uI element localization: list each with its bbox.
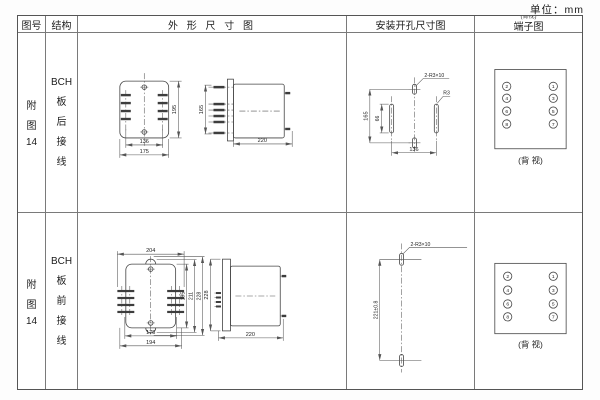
dim-depth: 220 bbox=[246, 332, 255, 338]
row1-mounting-cell: 165 66 136 2-R3×10 R3 bbox=[347, 33, 475, 213]
header-terminal-label: 端子图 bbox=[514, 18, 544, 33]
terminal-number: 7 bbox=[552, 315, 555, 321]
dim-mounting-width: 136 bbox=[409, 147, 418, 153]
dim-front-inner-width: 136 bbox=[140, 139, 149, 145]
row2-mounting-cell: 221±0.8 2-R3×10 bbox=[347, 213, 475, 389]
dim-slot-height: 66 bbox=[375, 116, 381, 122]
terminal-number: 7 bbox=[552, 122, 555, 128]
outline-drawing-rear: 136 175 195 165 bbox=[78, 33, 347, 213]
row2-structure-line: 接 bbox=[57, 312, 67, 327]
dim-height-mid: 211 bbox=[189, 292, 195, 300]
dim-mounting-height: 165 bbox=[363, 111, 369, 120]
terminal-number: 1 bbox=[552, 84, 555, 90]
front-view: 136 175 195 bbox=[120, 73, 182, 158]
view-note: (背 视) bbox=[518, 340, 543, 350]
dim-inner-width: 175 bbox=[146, 330, 155, 336]
hole-callout-label: 2-R3×10 bbox=[424, 73, 444, 79]
terminal-number: 2 bbox=[506, 274, 509, 280]
hole-callout-label: 2-R3×10 bbox=[411, 242, 431, 248]
row2-fig-char: 14 bbox=[26, 316, 37, 327]
side-view: 228 220 bbox=[204, 259, 288, 341]
terminal-number: 4 bbox=[505, 96, 508, 102]
terminal-diagram-rear: 2 4 6 8 1 3 5 7 (背 视) bbox=[475, 33, 581, 213]
row1-structure-line: 线 bbox=[57, 153, 67, 168]
row2-structure-line: BCH bbox=[51, 256, 72, 267]
header-structure: 结构 bbox=[46, 16, 78, 33]
row2-outline-cell: 204 195 211 228 175 194 bbox=[78, 213, 347, 389]
terminal-number: 3 bbox=[552, 288, 555, 294]
header-outline: 外 形 尺 寸 图 bbox=[78, 16, 347, 33]
row1-terminal-cell: 2 4 6 8 1 3 5 7 (背 视) bbox=[475, 33, 582, 213]
row1-structure-line: 接 bbox=[57, 133, 67, 148]
row1-structure-line: 板 bbox=[57, 93, 67, 108]
row1-structure-line: BCH bbox=[51, 77, 72, 88]
dim-depth: 220 bbox=[258, 138, 267, 144]
row1-fig-char: 图 bbox=[27, 117, 37, 132]
header-terminal: (背视) 端子图 bbox=[475, 16, 582, 33]
terminal-diagram-front: 2 4 6 8 1 3 5 7 (背 视) bbox=[475, 213, 581, 389]
row1-fig-char: 附 bbox=[27, 97, 37, 112]
row2-fig-no: 附 图 14 bbox=[18, 213, 46, 389]
view-note: (背 视) bbox=[518, 156, 543, 166]
row1-outline-cell: 136 175 195 165 bbox=[78, 33, 347, 213]
dim-height-outer: 228 bbox=[197, 292, 203, 301]
terminal-number: 8 bbox=[505, 122, 508, 128]
terminal-number: 5 bbox=[552, 302, 555, 308]
terminal-number: 8 bbox=[506, 315, 509, 321]
mounting-drawing-rear: 165 66 136 2-R3×10 R3 bbox=[347, 33, 474, 213]
side-view: 165 220 bbox=[199, 79, 292, 147]
dim-side-height: 228 bbox=[204, 290, 210, 299]
dim-top-width: 204 bbox=[146, 248, 155, 254]
dim-front-height: 195 bbox=[172, 105, 178, 114]
row2-structure: BCH 板 前 接 线 bbox=[46, 213, 78, 389]
terminal-number: 5 bbox=[552, 109, 555, 115]
row2-terminal-cell: 2 4 6 8 1 3 5 7 (背 视) bbox=[475, 213, 582, 389]
dim-hole-spacing: 221±0.8 bbox=[373, 301, 379, 320]
dim-bottom-width: 194 bbox=[146, 340, 155, 346]
terminal-number: 2 bbox=[505, 84, 508, 90]
terminal-number: 1 bbox=[552, 274, 555, 280]
row1-structure-line: 后 bbox=[57, 113, 67, 128]
dim-height-inner: 195 bbox=[181, 292, 187, 301]
header-fig-no: 图号 bbox=[18, 16, 46, 33]
row2-structure-line: 线 bbox=[57, 332, 67, 347]
header-mounting: 安装开孔尺寸图 bbox=[347, 16, 475, 33]
front-view: 204 195 211 228 175 194 bbox=[117, 248, 204, 349]
spec-table: 图号 结构 外 形 尺 寸 图 安装开孔尺寸图 (背视) 端子图 附 图 14 … bbox=[17, 15, 583, 390]
row1-fig-no: 附 图 14 bbox=[18, 33, 46, 213]
row1-fig-char: 14 bbox=[26, 137, 37, 148]
terminal-number: 6 bbox=[506, 302, 509, 308]
row2-structure-line: 板 bbox=[57, 272, 67, 287]
row1-structure: BCH 板 后 接 线 bbox=[46, 33, 78, 213]
outline-drawing-front: 204 195 211 228 175 194 bbox=[78, 213, 347, 389]
row2-fig-char: 图 bbox=[27, 296, 37, 311]
mounting-drawing-front: 221±0.8 2-R3×10 bbox=[347, 213, 474, 389]
radius-callout-label: R3 bbox=[443, 91, 450, 97]
terminal-number: 6 bbox=[505, 109, 508, 115]
terminal-number: 4 bbox=[506, 288, 509, 294]
row2-fig-char: 附 bbox=[27, 276, 37, 291]
row2-structure-line: 前 bbox=[57, 292, 67, 307]
terminal-number: 3 bbox=[552, 96, 555, 102]
dim-stud-span: 165 bbox=[199, 105, 205, 114]
dim-front-width: 175 bbox=[140, 149, 149, 155]
